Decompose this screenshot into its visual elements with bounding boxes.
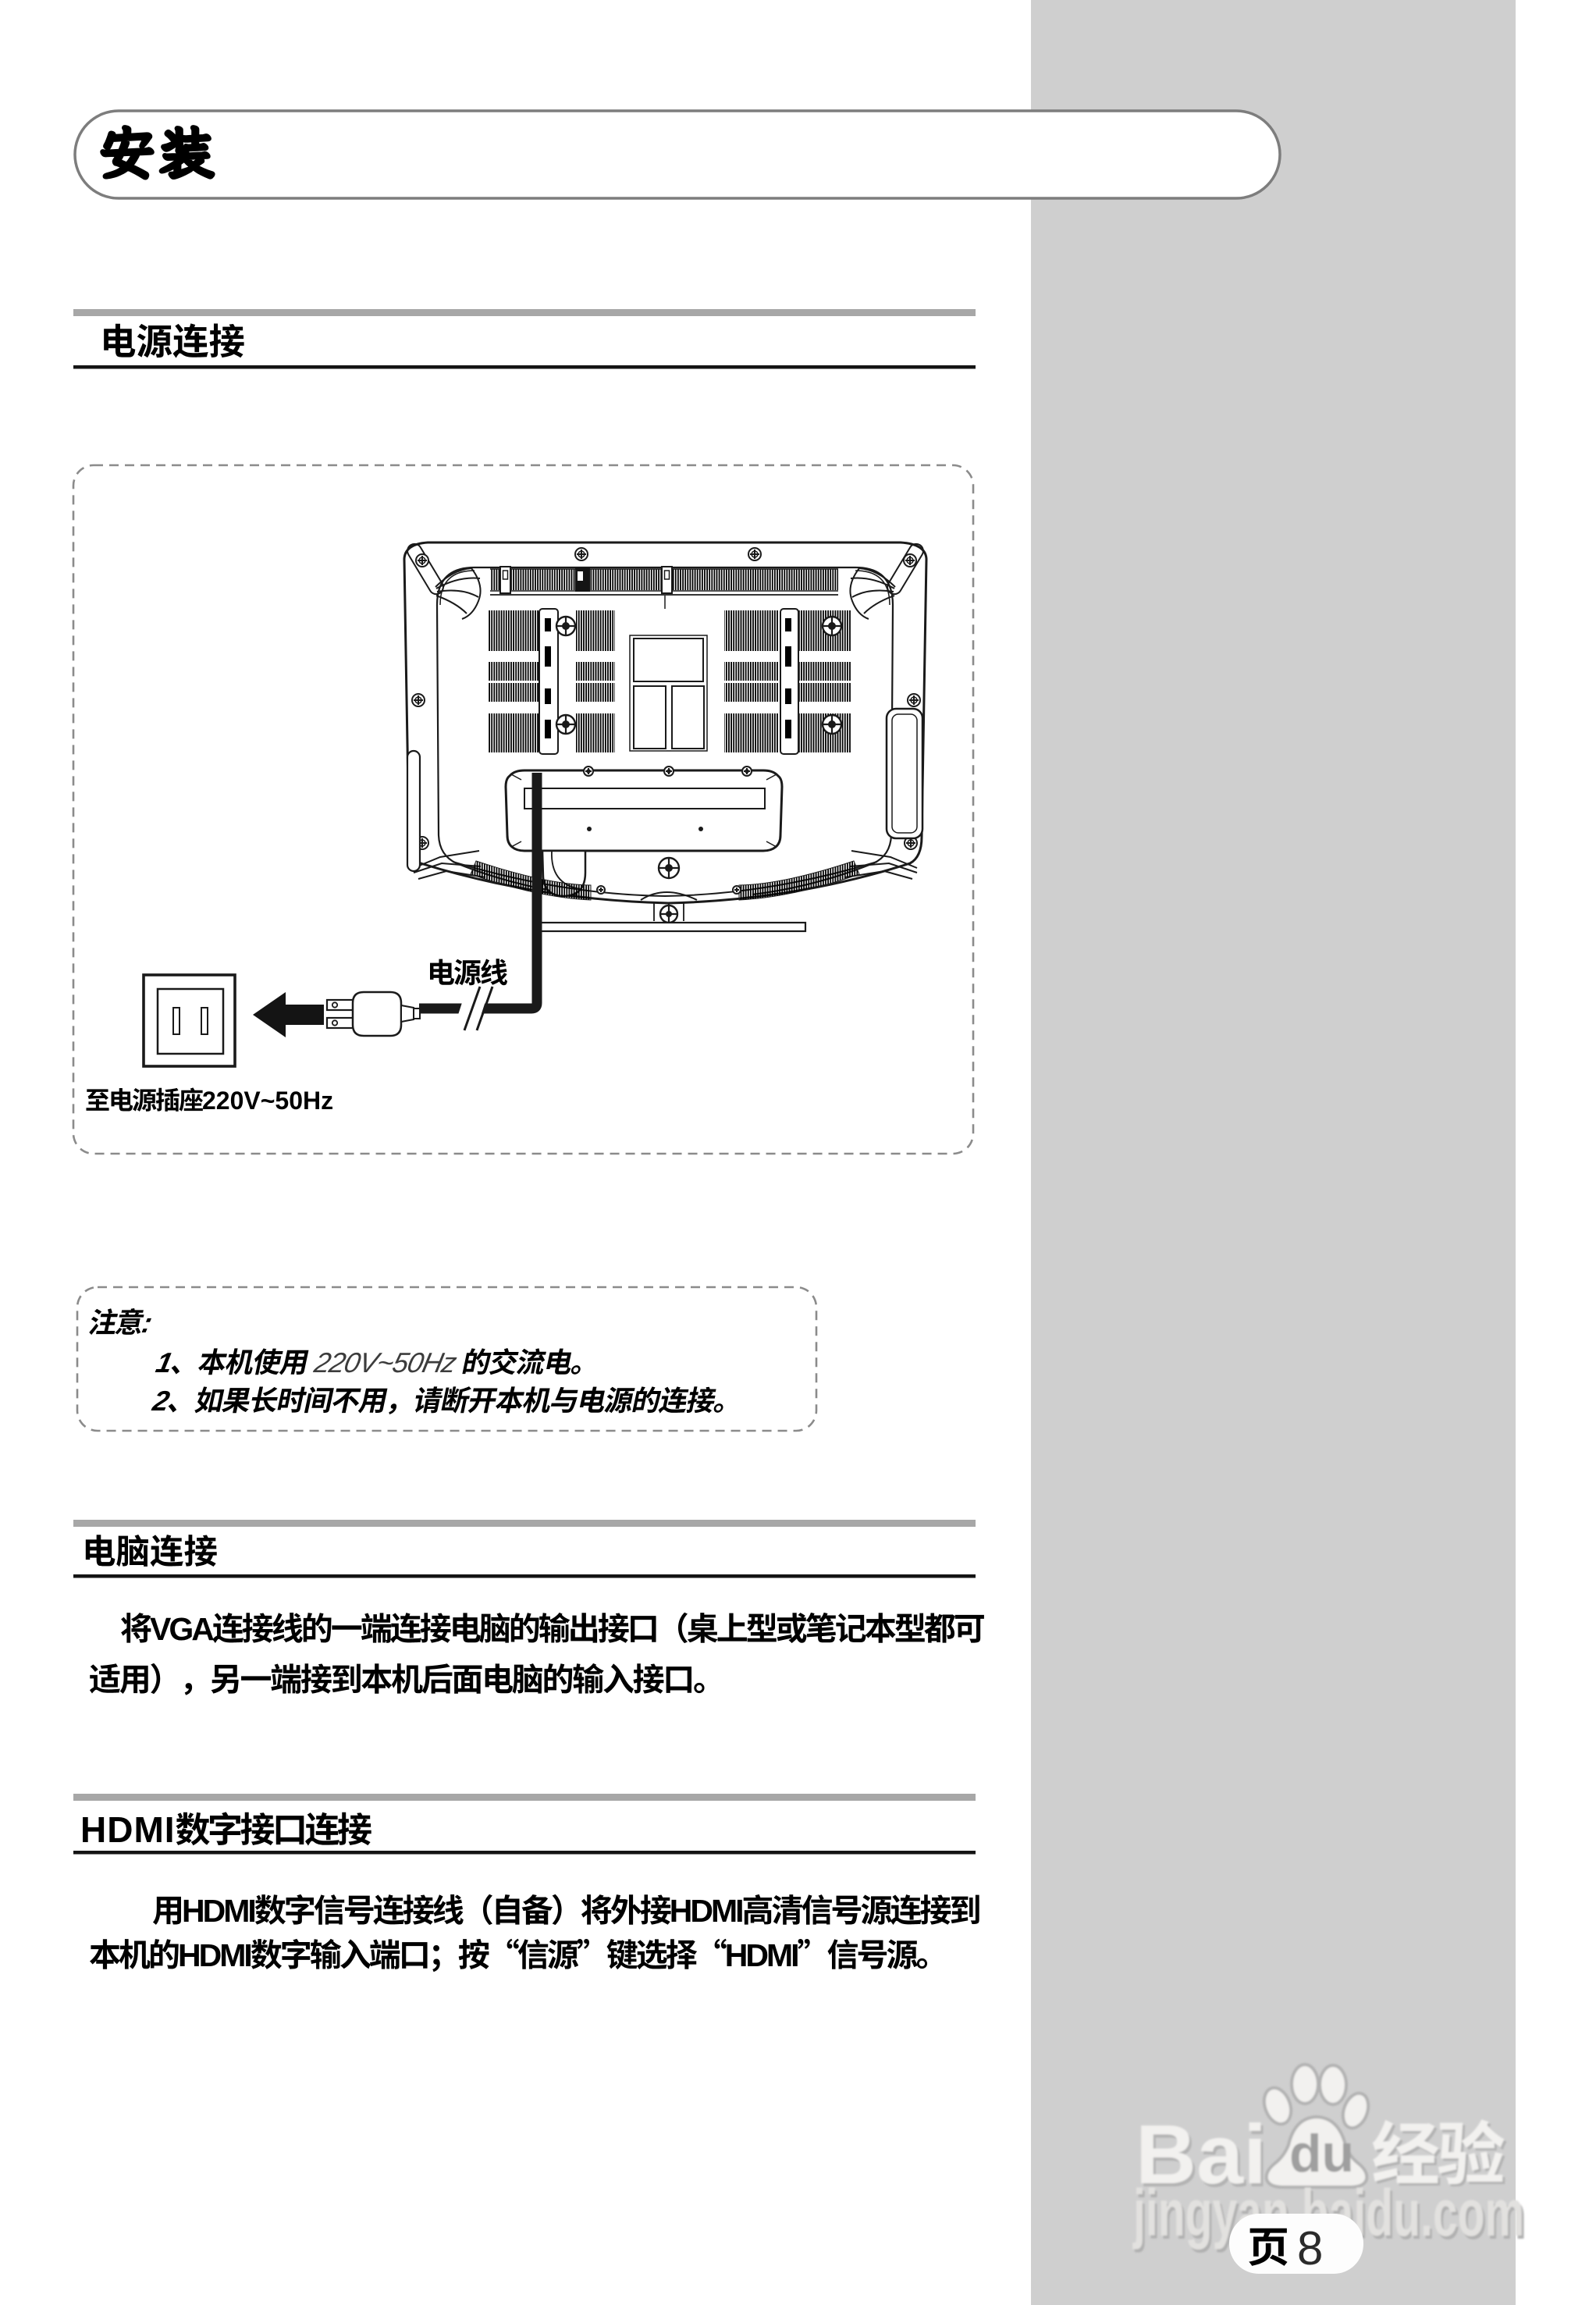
svg-text:HDMI: HDMI bbox=[725, 1937, 798, 1973]
svg-text:220V~50Hz: 220V~50Hz bbox=[311, 1346, 459, 1378]
svg-text:220V~50Hz: 220V~50Hz bbox=[202, 1087, 333, 1115]
svg-text:VGA: VGA bbox=[150, 1611, 214, 1647]
svg-text:HDMI: HDMI bbox=[80, 1809, 176, 1850]
svg-text:2: 2 bbox=[149, 1385, 172, 1417]
svg-text:1: 1 bbox=[153, 1346, 175, 1378]
svg-text:HDMI: HDMI bbox=[178, 1937, 251, 1973]
svg-text:HDMI: HDMI bbox=[182, 1893, 254, 1929]
svg-text:8: 8 bbox=[1297, 2222, 1323, 2275]
svg-text:du: du bbox=[1289, 2124, 1354, 2183]
svg-text:HDMI: HDMI bbox=[670, 1893, 742, 1929]
